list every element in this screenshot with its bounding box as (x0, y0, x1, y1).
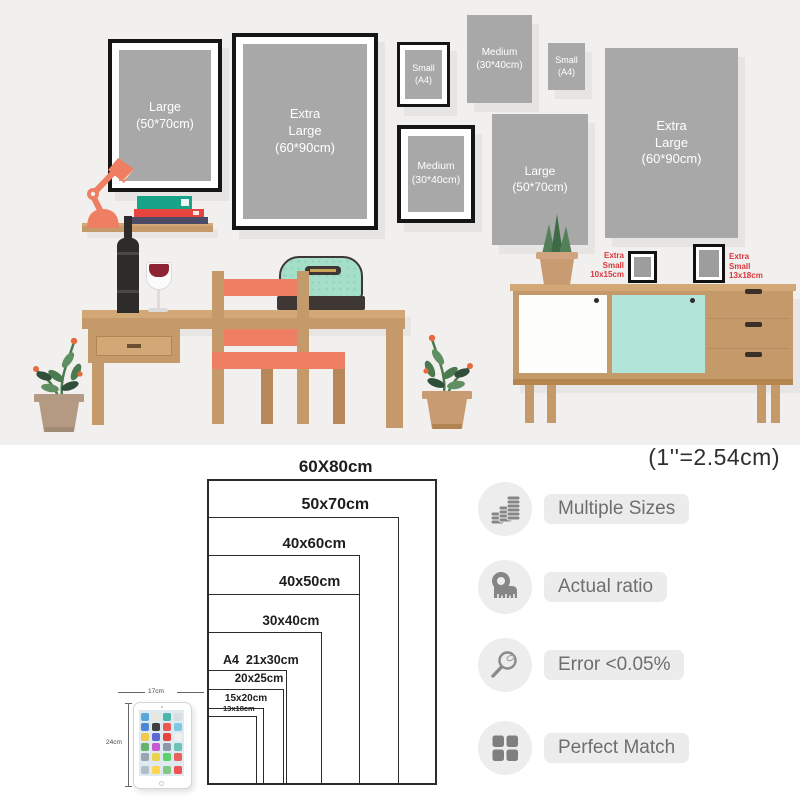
dock-app-icon (163, 766, 171, 774)
sideboard-leg (547, 385, 556, 423)
drawer-divider (708, 318, 790, 319)
measure-tick (125, 703, 132, 704)
height-measure-label: 24cm (106, 739, 122, 746)
tablet-reference (133, 702, 192, 789)
sideboard-leg (771, 385, 780, 423)
feature-row-multiple-sizes: Multiple Sizes (478, 482, 689, 536)
feature-label-pill: Actual ratio (544, 572, 667, 602)
width-measure-label: 17cm (148, 688, 164, 695)
door-knob (594, 298, 599, 303)
app-icon (163, 753, 171, 761)
book-page-edge (181, 199, 189, 206)
app-icon (141, 713, 149, 721)
storage-bag-base (277, 296, 365, 310)
measure-line (118, 692, 145, 693)
grid-icon (488, 731, 522, 765)
desk-leg (386, 329, 403, 428)
wall-frame-extra-large-60x90-framed: Extra Large (60*90cm) (232, 33, 378, 230)
app-icon (163, 733, 171, 741)
feature-icon-circle (478, 721, 532, 775)
wall-poster-medium-30x40: Medium (30*40cm) (467, 15, 532, 103)
desk-drawer-handle (127, 344, 141, 348)
book-navy (132, 217, 208, 224)
product-infographic: Large (50*70cm) Extra Large (60*90cm) Sm… (0, 0, 800, 800)
app-icon (152, 753, 160, 761)
app-icon (163, 713, 171, 721)
book-page-edge (193, 211, 199, 215)
size-label: 30x40cm (262, 614, 319, 628)
frame-photo (699, 250, 719, 277)
chair-slat (224, 329, 297, 346)
chair-front-leg (333, 369, 345, 424)
size-label: 40x60cm (283, 536, 346, 551)
magnifier-icon (488, 648, 522, 682)
measure-line (177, 692, 204, 693)
wine-bottle-band (117, 290, 139, 293)
sideboard-edge (513, 379, 793, 385)
unit-conversion-note: (1''=2.54cm) (648, 444, 780, 471)
app-icon (141, 733, 149, 741)
wall-poster-extra-large-60x90: Extra Large (60*90cm) (605, 48, 738, 238)
feature-icon-circle (478, 560, 532, 614)
chair-slat (224, 279, 297, 296)
storage-bag-zipper (310, 269, 336, 272)
wine-bottle (117, 238, 139, 313)
frame-size-label: Extra Large (60*90cm) (605, 48, 738, 238)
feature-label-pill: Perfect Match (544, 733, 689, 763)
wall-poster-small-a4: Small (A4) (548, 43, 585, 90)
extra-small-left-label: Extra Small 10x15cm (576, 251, 624, 280)
chair-front-leg (261, 369, 273, 424)
app-icon (163, 723, 171, 731)
app-icon (174, 733, 182, 741)
sideboard-leg (525, 385, 534, 423)
size-label: 60X80cm (299, 458, 373, 475)
tape-measure-icon (488, 570, 522, 604)
dock-app-icon (152, 766, 160, 774)
size-label: 13x18cm (223, 705, 255, 713)
chair-back-post (297, 271, 309, 424)
feature-row-actual-ratio: Actual ratio (478, 560, 667, 614)
app-icon (174, 713, 182, 721)
app-icon (152, 713, 160, 721)
floor-plant-left (18, 332, 102, 434)
app-icon (152, 723, 160, 731)
frame-size-label: Extra Large (60*90cm) (236, 37, 374, 226)
desk-lamp (78, 152, 136, 230)
chair-seat (212, 352, 345, 369)
wine-fill (149, 264, 169, 277)
door-knob (690, 298, 695, 303)
feature-row-error-rate: Error <0.05% (478, 638, 684, 692)
sideboard-leg (757, 385, 766, 423)
sideboard-drawer-handle (745, 289, 762, 294)
dock-app-icon (141, 766, 149, 774)
dock-app-icon (174, 766, 182, 774)
app-icon (141, 723, 149, 731)
app-icon (174, 723, 182, 731)
frame-size-label: Medium (30*40cm) (401, 129, 471, 219)
tablet-screen (139, 710, 184, 776)
feature-label-pill: Multiple Sizes (544, 494, 689, 524)
app-icon (152, 733, 160, 741)
app-icon (174, 753, 182, 761)
frame-photo (634, 257, 651, 277)
wall-frame-small-a4-framed: Small (A4) (397, 42, 450, 107)
feature-icon-circle (478, 482, 532, 536)
coins-icon (488, 492, 522, 526)
photo-frame-13x18 (693, 244, 725, 283)
size-label: A4 21x30cm (223, 654, 299, 667)
sideboard-drawer-handle (745, 322, 762, 327)
room-illustration: Large (50*70cm) Extra Large (60*90cm) Sm… (0, 0, 800, 445)
potted-plant-sideboard (534, 208, 580, 286)
extra-small-right-label: Extra Small 13x18cm (729, 252, 779, 281)
sideboard-drawer-handle (745, 352, 762, 357)
frame-size-label: Small (A4) (548, 43, 585, 90)
measure-tick (125, 786, 132, 787)
drawer-divider (708, 348, 790, 349)
floor-plant-right (404, 326, 488, 434)
frame-size-label: Small (A4) (400, 45, 447, 104)
app-icon (163, 743, 171, 751)
app-icon (141, 753, 149, 761)
size-rect-13x18 (207, 716, 257, 785)
wine-glass-stem (157, 290, 160, 308)
size-label: 50x70cm (301, 497, 369, 513)
frame-size-label: Medium (30*40cm) (467, 15, 532, 103)
feature-label-pill: Error <0.05% (544, 650, 684, 680)
photo-frame-10x15 (628, 251, 657, 283)
feature-row-perfect-match: Perfect Match (478, 721, 689, 775)
feature-icon-circle (478, 638, 532, 692)
wine-glass-foot (148, 308, 168, 312)
wine-bottle-band (117, 252, 139, 255)
size-label: 40x50cm (279, 575, 340, 590)
size-label: 20x25cm (235, 674, 284, 686)
camera-dot-icon (161, 706, 163, 708)
app-icon (152, 743, 160, 751)
sideboard-door-white (519, 295, 607, 373)
home-button-icon (159, 781, 164, 786)
app-icon (141, 743, 149, 751)
chair-back-post (212, 271, 224, 424)
measure-line (128, 703, 129, 787)
app-icon (174, 743, 182, 751)
sideboard-door-mint (612, 295, 705, 373)
wall-frame-medium-30x40-framed: Medium (30*40cm) (397, 125, 475, 223)
